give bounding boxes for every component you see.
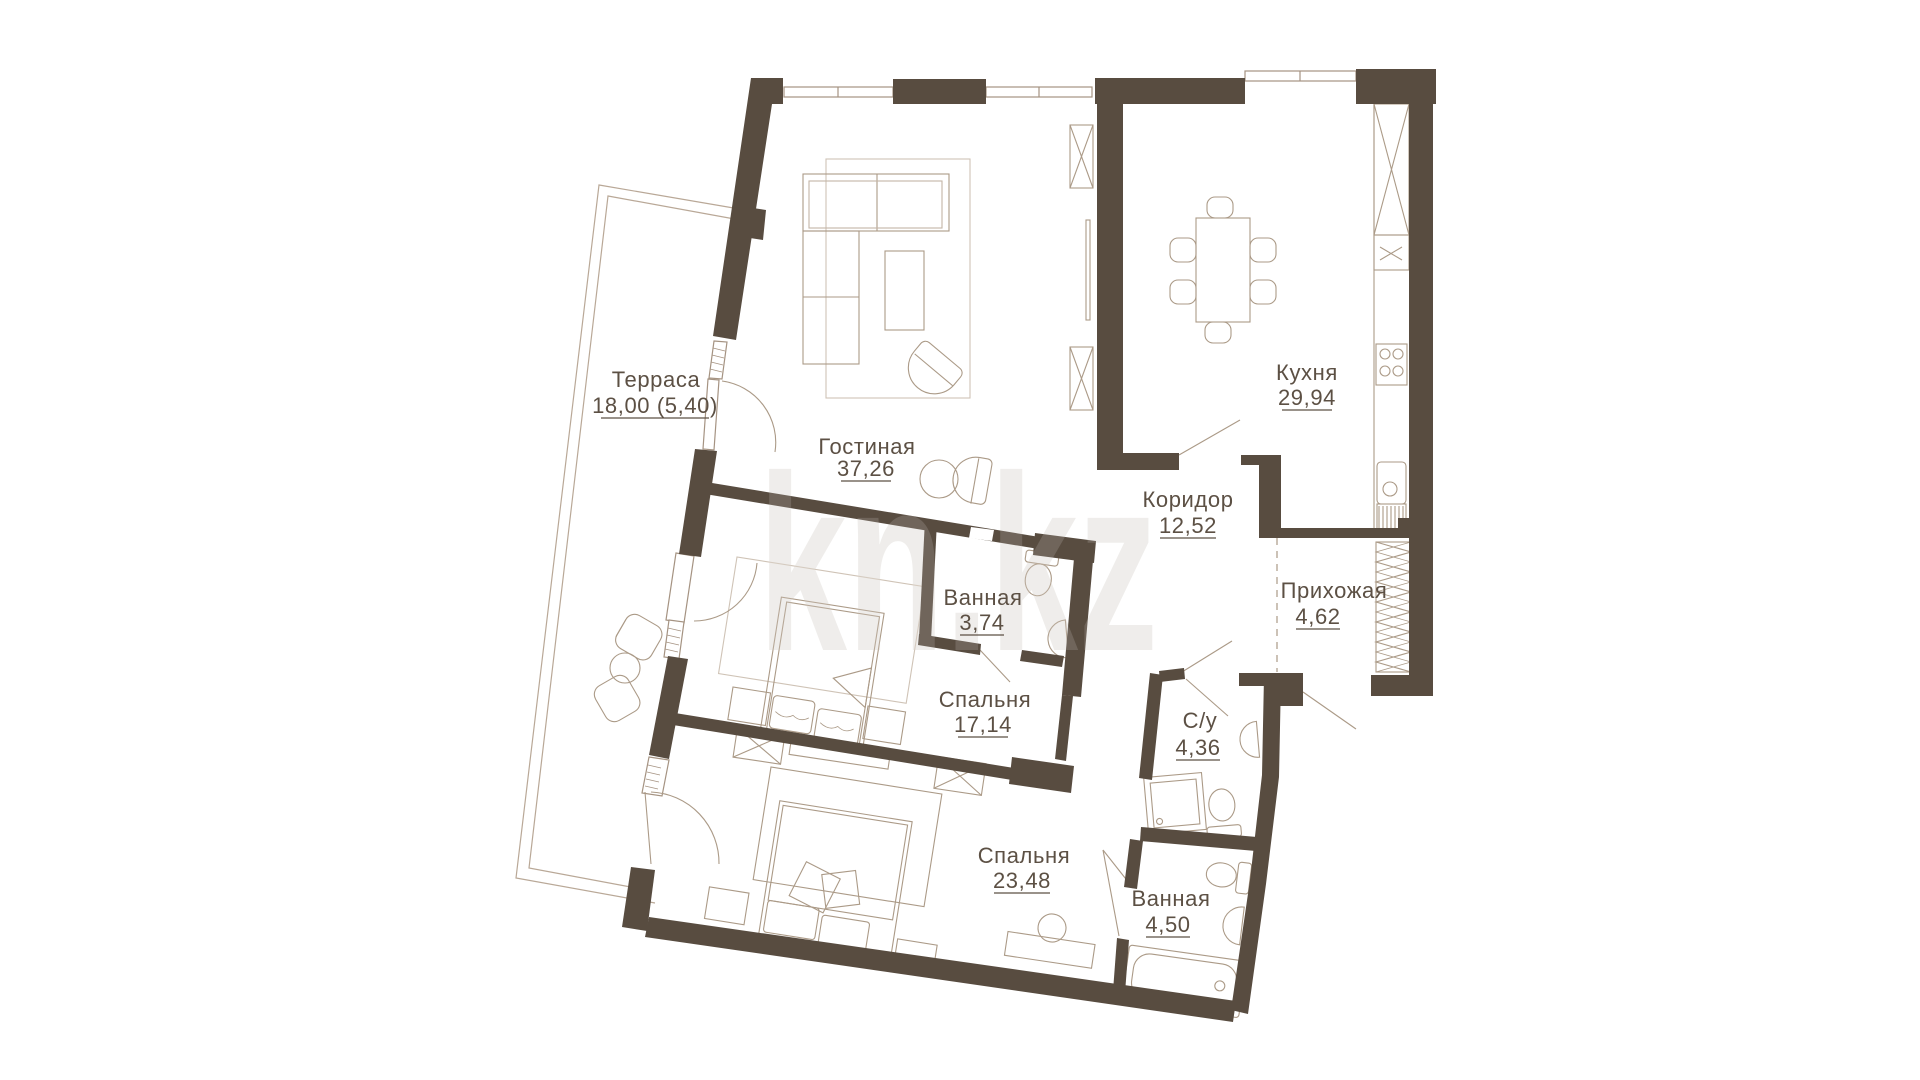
svg-text:kn.kz: kn.kz [758,424,1158,703]
svg-text:Терраса: Терраса [612,367,701,392]
svg-text:29,94: 29,94 [1278,385,1336,410]
svg-text:4,36: 4,36 [1175,735,1220,760]
svg-text:Ванная: Ванная [1132,886,1211,911]
svg-text:С/у: С/у [1183,708,1218,733]
svg-text:Спальня: Спальня [939,687,1032,712]
svg-text:18,00 (5,40): 18,00 (5,40) [592,393,718,418]
svg-text:37,26: 37,26 [837,456,895,481]
svg-text:23,48: 23,48 [993,868,1051,893]
svg-text:Кухня: Кухня [1276,360,1338,385]
svg-text:4,62: 4,62 [1295,604,1340,629]
svg-text:Прихожая: Прихожая [1281,578,1388,603]
svg-text:17,14: 17,14 [954,712,1012,737]
svg-text:3,74: 3,74 [959,610,1004,635]
svg-text:Коридор: Коридор [1142,487,1233,512]
svg-text:4,50: 4,50 [1145,912,1190,937]
svg-text:Ванная: Ванная [944,585,1023,610]
svg-text:Спальня: Спальня [978,843,1071,868]
svg-text:12,52: 12,52 [1159,513,1217,538]
